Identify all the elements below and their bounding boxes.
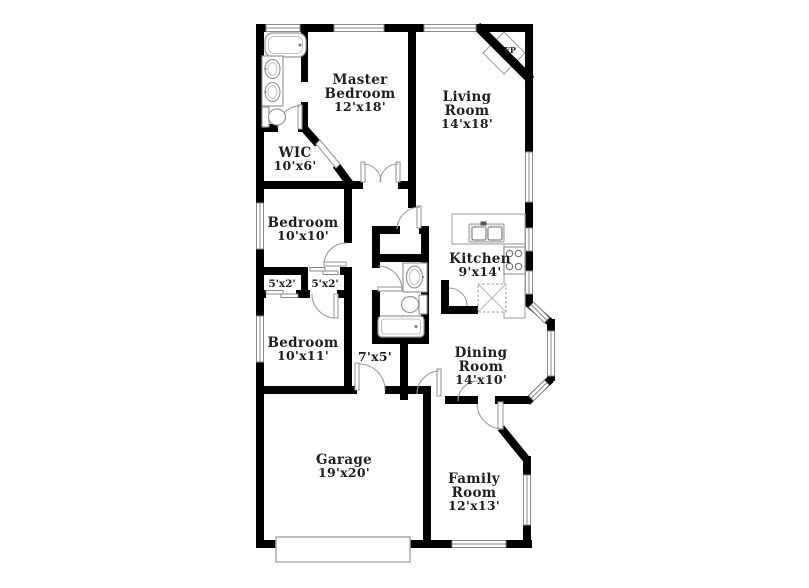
- room-label-closet-right: 5'x2': [311, 278, 338, 290]
- label-size: 10'x10': [277, 228, 329, 243]
- window-master-top: [334, 25, 384, 32]
- room-label-closet-left: 5'x2': [268, 278, 295, 290]
- bedroom-10x11-door: [312, 294, 338, 318]
- master-bathtub-icon: [265, 33, 306, 57]
- floor-plan: Master Bedroom 12'x18' Living Room 14'x1…: [0, 0, 809, 588]
- floor-plan-drawing: Master Bedroom 12'x18' Living Room 14'x1…: [0, 0, 809, 588]
- bedroom-10x10-door: [324, 243, 346, 266]
- window-bay-top: [529, 302, 550, 323]
- label-size: 7'x5': [358, 349, 392, 364]
- bath-toilet-icon: [402, 295, 428, 314]
- window-bedroom-10x11: [257, 316, 264, 362]
- window-living-right: [526, 152, 533, 202]
- dining-family-door: [458, 381, 503, 429]
- label-size: 12'x18': [334, 99, 386, 114]
- label-size: 5'x2': [268, 278, 295, 290]
- window-family-bottom: [452, 541, 506, 548]
- room-label-fireplace: FP: [504, 45, 516, 55]
- window-kitchen-2: [526, 271, 533, 294]
- label-text: FP: [504, 45, 516, 55]
- master-toilet-icon: [262, 107, 286, 127]
- window-living-top: [424, 25, 476, 32]
- label-size: 10'x11': [277, 348, 329, 363]
- room-label-family-room: Family Room 12'x13': [448, 471, 501, 513]
- garage-entry-door: [355, 363, 385, 390]
- window-bedroom-10x10: [257, 203, 264, 249]
- bath-tub-icon: [378, 316, 424, 337]
- kitchen-counter-icon: [452, 214, 525, 244]
- room-label-kitchen: Kitchen 9'x14': [449, 251, 511, 279]
- room-label-bedroom-10x11: Bedroom 10'x11': [268, 335, 339, 363]
- window-bay-bottom: [529, 380, 550, 401]
- garage-door: [276, 537, 410, 562]
- room-label-hall: 7'x5': [358, 349, 392, 364]
- label-size: 14'x18': [441, 116, 493, 131]
- pantry-icon: [478, 284, 506, 312]
- room-label-bedroom-10x10: Bedroom 10'x10': [268, 215, 339, 243]
- window-family-right: [524, 475, 531, 525]
- bathroom-door: [378, 266, 402, 291]
- closet-left-slider: [266, 291, 298, 298]
- label-size: 12'x13': [448, 498, 500, 513]
- window-kitchen-1: [526, 228, 533, 251]
- room-label-master-bedroom: Master Bedroom 12'x18': [325, 72, 396, 114]
- room-label-living-room: Living Room 14'x18': [441, 89, 493, 131]
- master-vanity-icon: [262, 56, 283, 106]
- label-size: 5'x2': [311, 278, 338, 290]
- room-label-wic: WIC 10'x6': [274, 145, 317, 173]
- hall-closet-door: [397, 206, 421, 229]
- window-bath-top: [266, 25, 300, 32]
- window-bay-right: [548, 331, 555, 376]
- closet-right-slider: [310, 268, 338, 275]
- label-size: 19'x20': [318, 465, 370, 480]
- label-size: 14'x10': [455, 372, 507, 387]
- kitchen-closet-door: [449, 288, 467, 306]
- wic-door: [316, 140, 340, 168]
- label-size: 9'x14': [459, 264, 502, 279]
- bath-vanity-icon: [403, 263, 427, 292]
- room-label-dining-room: Dining Room 14'x10': [455, 345, 508, 387]
- room-label-garage: Garage 19'x20': [316, 452, 372, 480]
- master-double-door: [361, 162, 400, 182]
- label-size: 10'x6': [274, 158, 317, 173]
